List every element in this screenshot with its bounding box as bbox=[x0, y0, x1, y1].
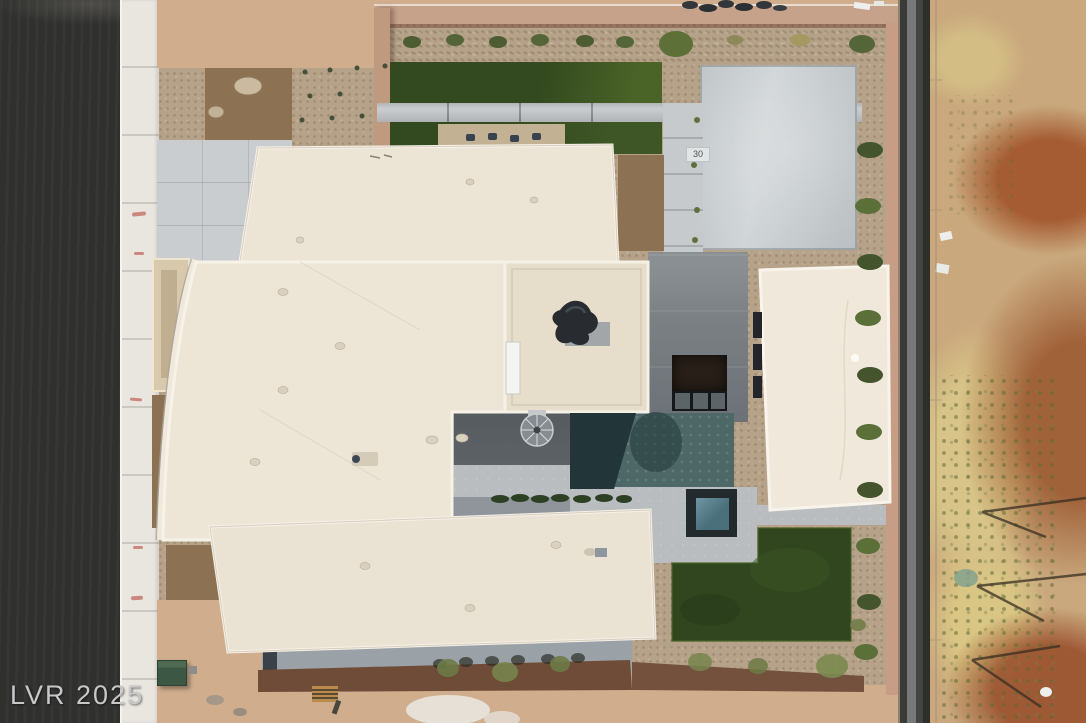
pool-deck-west bbox=[452, 465, 570, 497]
window-pane-1 bbox=[675, 393, 690, 409]
window-pane-2 bbox=[693, 393, 708, 409]
spa-water bbox=[696, 498, 729, 530]
courtyard-gravel-strip bbox=[390, 22, 886, 62]
window-pane-3 bbox=[711, 393, 725, 409]
desert-scrub-patches bbox=[938, 375, 1058, 723]
utility-box-green bbox=[157, 660, 187, 686]
asphalt-road bbox=[0, 0, 123, 723]
garage-south-deck bbox=[757, 505, 886, 525]
gravel-bed-west bbox=[152, 395, 186, 528]
address-paver-label: 30 bbox=[693, 149, 703, 159]
entry-structure-inner bbox=[161, 270, 177, 378]
utility-box-small bbox=[189, 666, 197, 674]
shade-window-dark bbox=[672, 355, 727, 391]
dirt-south-strip bbox=[157, 685, 898, 723]
perimeter-wall-pink bbox=[886, 22, 898, 695]
top-dirt-band bbox=[157, 0, 379, 68]
watermark-text: LVR 2025 bbox=[10, 680, 144, 711]
lower-court-wall bbox=[452, 497, 570, 540]
planting-bed-east-of-roof bbox=[618, 155, 664, 251]
desert-scrub-mid bbox=[945, 95, 1015, 215]
swimming-pool bbox=[570, 413, 734, 489]
block-wall-dark bbox=[898, 0, 930, 723]
courtyard-wall-left bbox=[374, 8, 390, 154]
spray-mark-2 bbox=[134, 252, 144, 255]
aerial-photo-scene: 30 bbox=[0, 0, 1086, 723]
planting-bed-topleft bbox=[205, 68, 292, 140]
entry-plaza-concrete bbox=[157, 140, 292, 268]
spray-mark-5 bbox=[131, 596, 143, 601]
turf-front-upper bbox=[390, 62, 662, 105]
entry-walkway bbox=[663, 103, 703, 253]
courtyard-plant-bed bbox=[438, 124, 565, 150]
concrete-driveway bbox=[700, 65, 857, 250]
driveway-address-paver: 30 bbox=[686, 147, 710, 162]
stair-courtyard bbox=[452, 410, 570, 467]
spray-mark-4 bbox=[133, 546, 143, 549]
